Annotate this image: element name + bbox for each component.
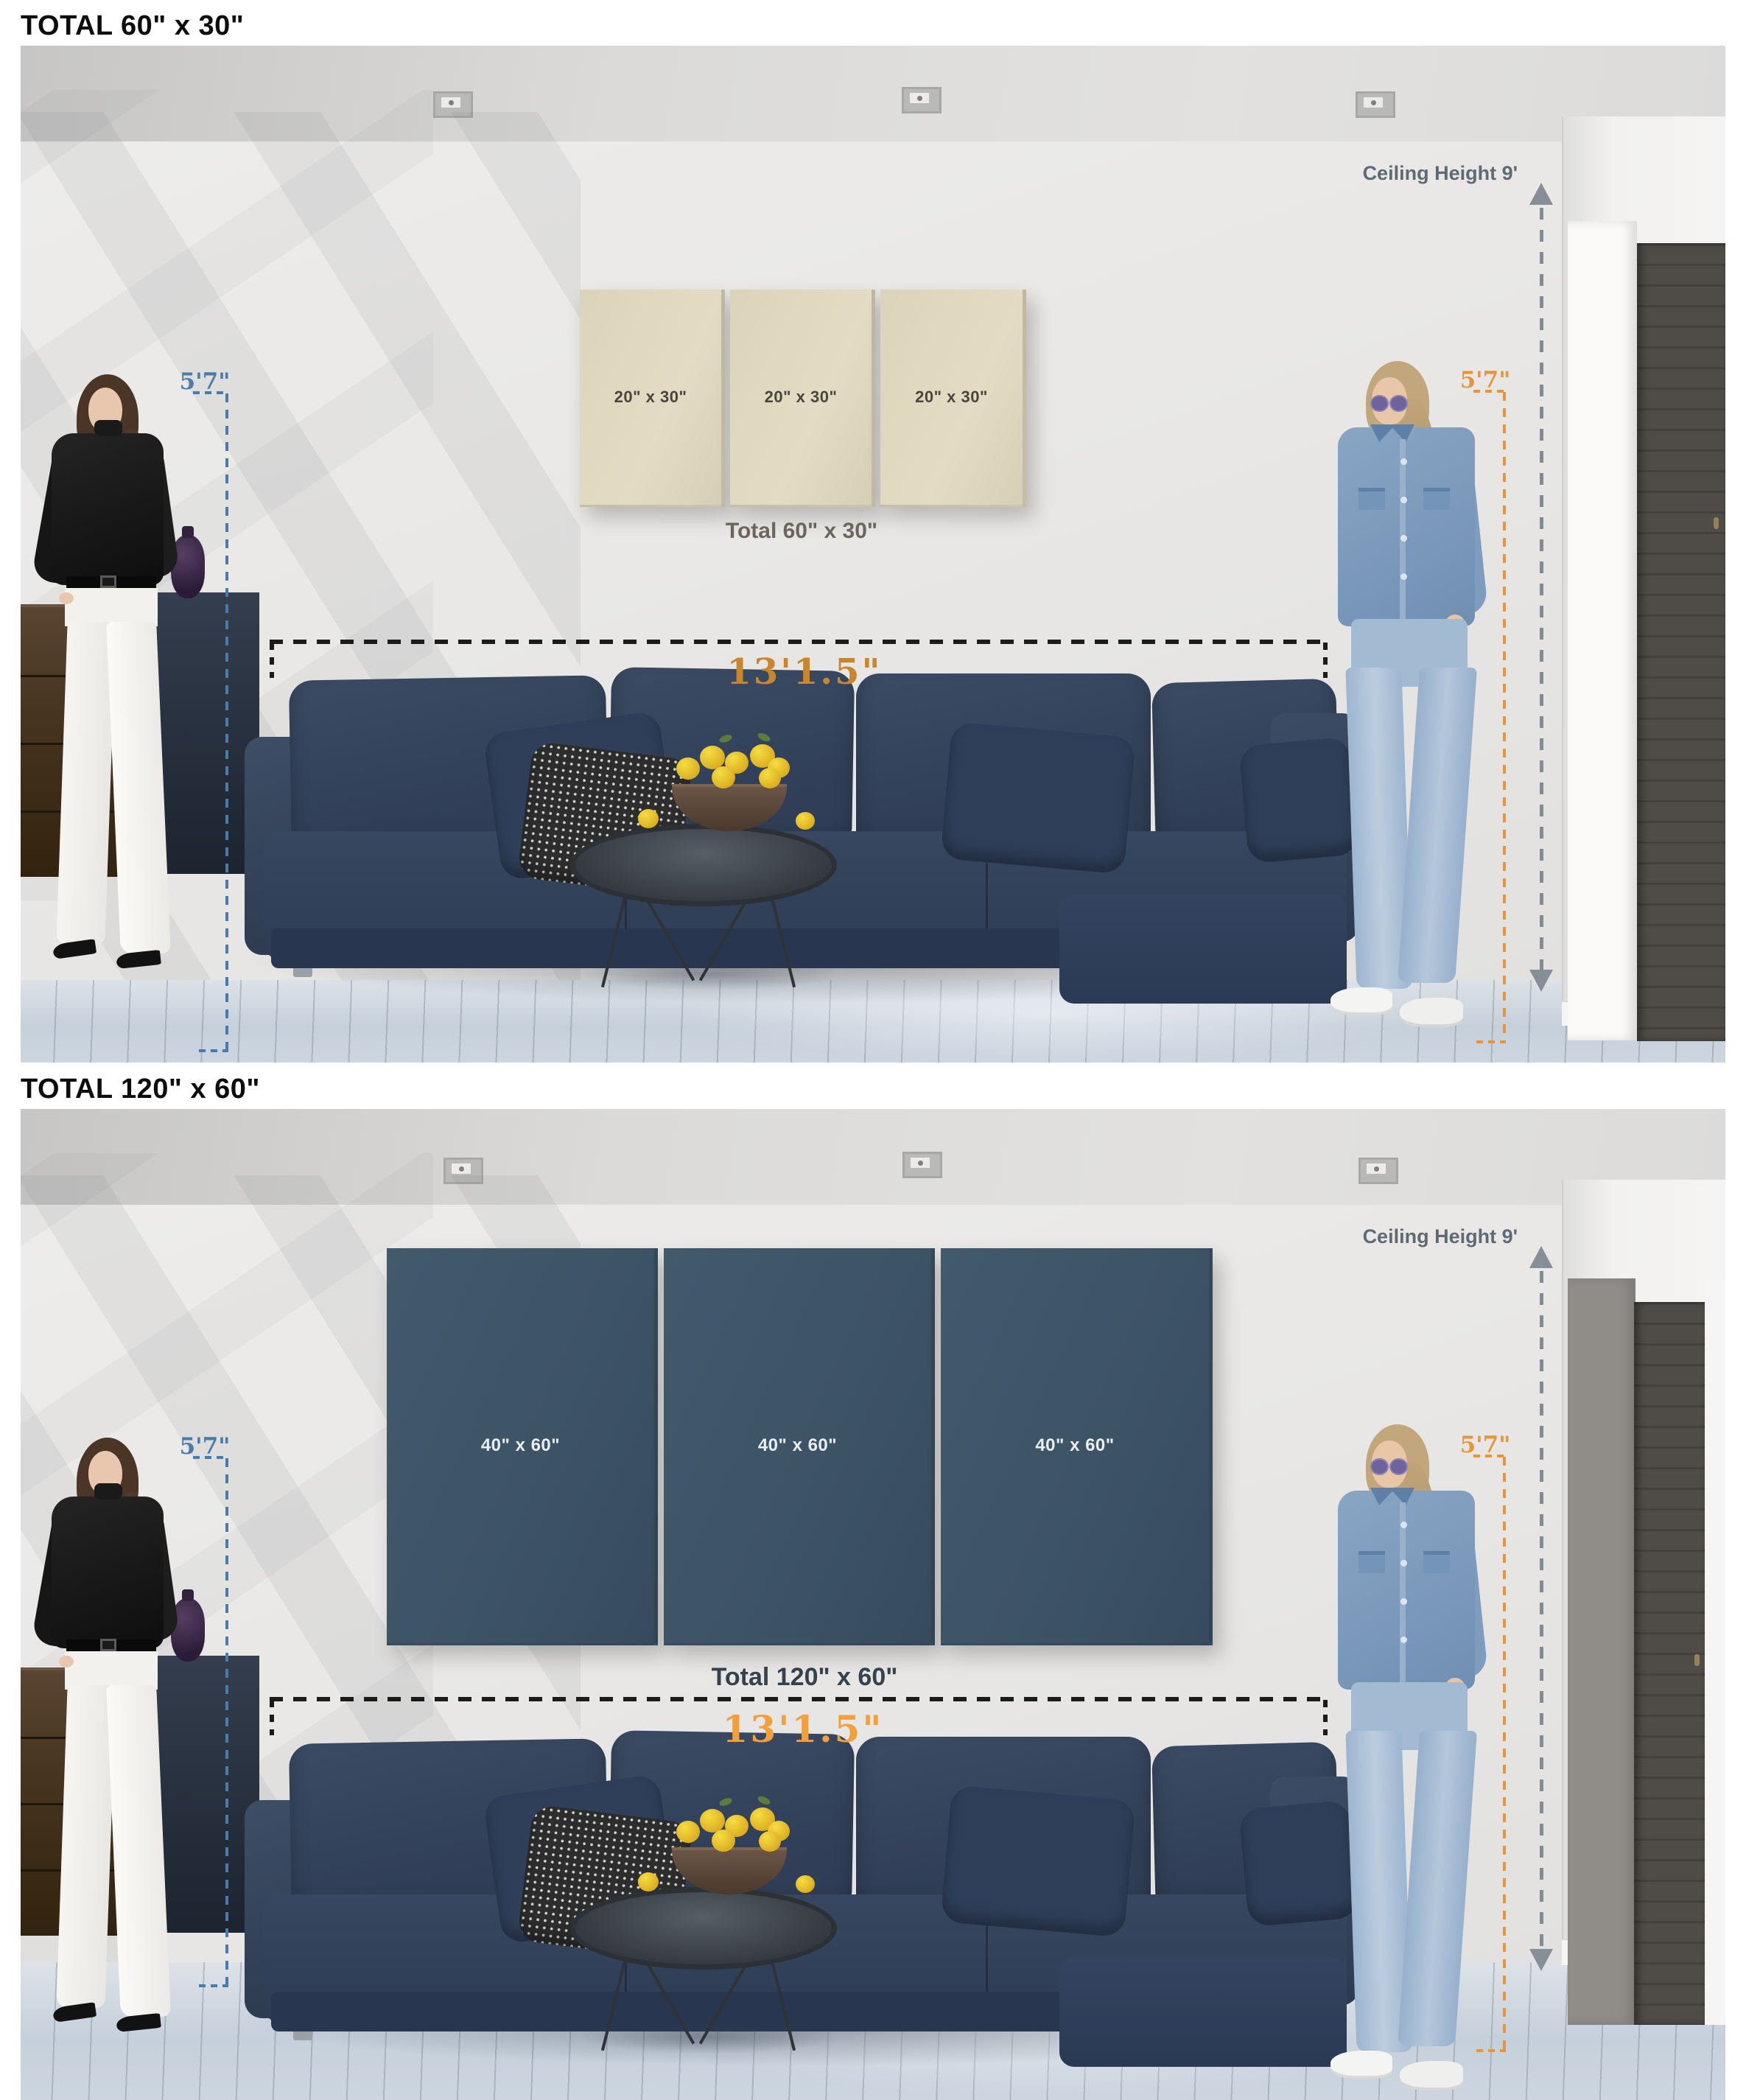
coffee-table (570, 824, 837, 906)
left-height-tick (199, 1984, 228, 1987)
width-dimension-end (1323, 1700, 1328, 1735)
left-height-tick (193, 391, 228, 394)
woman-right-sneaker (1400, 998, 1463, 1024)
lemon (759, 768, 781, 788)
arrow-up-icon (1529, 183, 1553, 205)
sunglasses-icon (1370, 1458, 1389, 1475)
door-handle (1714, 517, 1719, 529)
door (1637, 243, 1725, 1041)
pillow (1238, 737, 1358, 864)
woman-right-sneaker (1330, 2051, 1392, 2076)
lemon (796, 812, 815, 830)
jacket-placket (1400, 1502, 1406, 1685)
canvas-size-label: 40" x 60" (481, 1435, 560, 1456)
ceiling-height-label: Ceiling Height 9' (1311, 1225, 1518, 1248)
right-height-tick (1473, 390, 1506, 393)
lemon (796, 1875, 815, 1893)
door-handle (1694, 1654, 1700, 1666)
canvas-size-label: 20" x 30" (765, 388, 838, 407)
left-height-line (225, 393, 228, 1051)
woman-left-trousers (65, 588, 158, 626)
ceiling-light (1356, 91, 1395, 118)
belt-buckle (100, 575, 116, 588)
woman-right-sneaker (1400, 2061, 1463, 2087)
vase-neck (182, 526, 194, 538)
section-title-120x60: TOTAL 120" x 60" (21, 1074, 260, 1105)
jacket-button (1400, 458, 1407, 465)
lemon (638, 809, 659, 828)
lemon (712, 1830, 735, 1852)
jacket-pocket (1423, 488, 1450, 510)
lemon (676, 757, 700, 780)
canvas-size-label: 40" x 60" (758, 1435, 837, 1456)
lemon (638, 1872, 659, 1891)
jacket-button (1400, 573, 1407, 580)
jacket-button (1400, 1560, 1407, 1567)
sofa-chaise (1059, 1958, 1347, 2067)
width-dimension-line (270, 1697, 1326, 1701)
left-height-tick (193, 1456, 228, 1459)
lemon (759, 1831, 781, 1852)
width-dimension-label: 13'1.5" (620, 651, 989, 693)
door-frame (1568, 1278, 1635, 2025)
vase (171, 1598, 205, 1662)
woman-left-hand (59, 1656, 74, 1667)
canvas-panel: 20" x 30" (730, 290, 875, 507)
width-dimension-line (270, 640, 1326, 644)
section-title-60x30: TOTAL 60" x 30" (21, 10, 244, 42)
sunglasses-icon (1389, 395, 1408, 412)
woman-left-collar (94, 1483, 122, 1499)
right-height-line (1503, 1457, 1506, 2051)
width-dimension-end (1323, 643, 1328, 678)
woman-left-trousers (65, 1651, 158, 1690)
ceiling-light (1358, 1158, 1398, 1184)
sunglasses-icon (1389, 1458, 1408, 1475)
left-height-tick (199, 1049, 228, 1052)
right-height-tick (1476, 1040, 1506, 1043)
jacket-button (1400, 1522, 1407, 1528)
total-size-label: Total 120" x 60" (583, 1663, 1025, 1692)
side-cabinet (156, 1656, 259, 1933)
sofa-chaise (1059, 895, 1347, 1004)
left-height-line (225, 1458, 228, 1986)
width-dimension-end (270, 643, 274, 678)
vase (171, 535, 205, 598)
jacket-button (1400, 497, 1407, 503)
jacket-button (1400, 1637, 1407, 1643)
canvas-size-label: 40" x 60" (1035, 1435, 1114, 1456)
room-photo-60x30: 20" x 30" 20" x 30" 20" x 30" Total 60" … (21, 46, 1725, 1063)
woman-left-blouse (52, 1497, 164, 1648)
ceiling-height-label: Ceiling Height 9' (1311, 162, 1518, 185)
woman-right-jacket (1338, 427, 1475, 626)
arrow-down-icon (1529, 970, 1553, 992)
canvas-size-label: 20" x 30" (915, 388, 988, 407)
right-height-tick (1476, 2049, 1506, 2052)
right-height-tick (1473, 1455, 1506, 1457)
ceiling-light (902, 1152, 942, 1178)
lemon (676, 1821, 700, 1843)
door-frame (1568, 221, 1637, 1040)
canvas-panel: 40" x 60" (664, 1248, 935, 1645)
canvas-panel: 40" x 60" (941, 1248, 1213, 1645)
room-photo-120x60: 40" x 60" 40" x 60" 40" x 60" Total 120"… (21, 1109, 1725, 2100)
width-dimension-label: 13'1.5" (619, 1707, 987, 1751)
jacket-pocket (1423, 1551, 1450, 1573)
coffee-table (570, 1887, 837, 1970)
jacket-button (1400, 535, 1407, 542)
canvas-size-label: 20" x 30" (614, 388, 687, 407)
arrow-down-icon (1529, 1949, 1553, 1971)
jacket-placket (1400, 439, 1406, 622)
width-dimension-end (270, 1700, 274, 1735)
ceiling-light (902, 87, 942, 113)
ceiling-height-line (1540, 208, 1543, 971)
size-guide-page: TOTAL 60" x 30" 20" x 30" 20" x 30" (0, 0, 1746, 2100)
canvas-panel: 40" x 60" (387, 1248, 658, 1645)
jacket-pocket (1358, 488, 1385, 510)
door-pillar (1705, 1278, 1725, 2025)
pillow (940, 721, 1135, 874)
total-size-label: Total 60" x 30" (581, 519, 1023, 544)
vase-neck (182, 1589, 194, 1601)
side-cabinet (156, 592, 259, 874)
jacket-pocket (1358, 1551, 1385, 1573)
woman-right-jacket (1338, 1491, 1475, 1690)
right-height-line (1503, 392, 1506, 1042)
woman-left-blouse (52, 433, 164, 585)
canvas-panel: 20" x 30" (580, 290, 725, 507)
arrow-up-icon (1529, 1246, 1553, 1268)
woman-left-collar (94, 420, 122, 436)
sunglasses-icon (1370, 395, 1389, 412)
pillow (940, 1785, 1135, 1937)
jacket-button (1400, 1598, 1407, 1605)
belt-buckle (100, 1639, 116, 1651)
canvas-panel: 20" x 30" (880, 290, 1026, 507)
pillow (1238, 1800, 1358, 1927)
ceiling-height-line (1540, 1271, 1543, 1950)
lemon (712, 766, 735, 788)
woman-right-sneaker (1330, 987, 1392, 1012)
woman-left-hand (59, 592, 74, 604)
